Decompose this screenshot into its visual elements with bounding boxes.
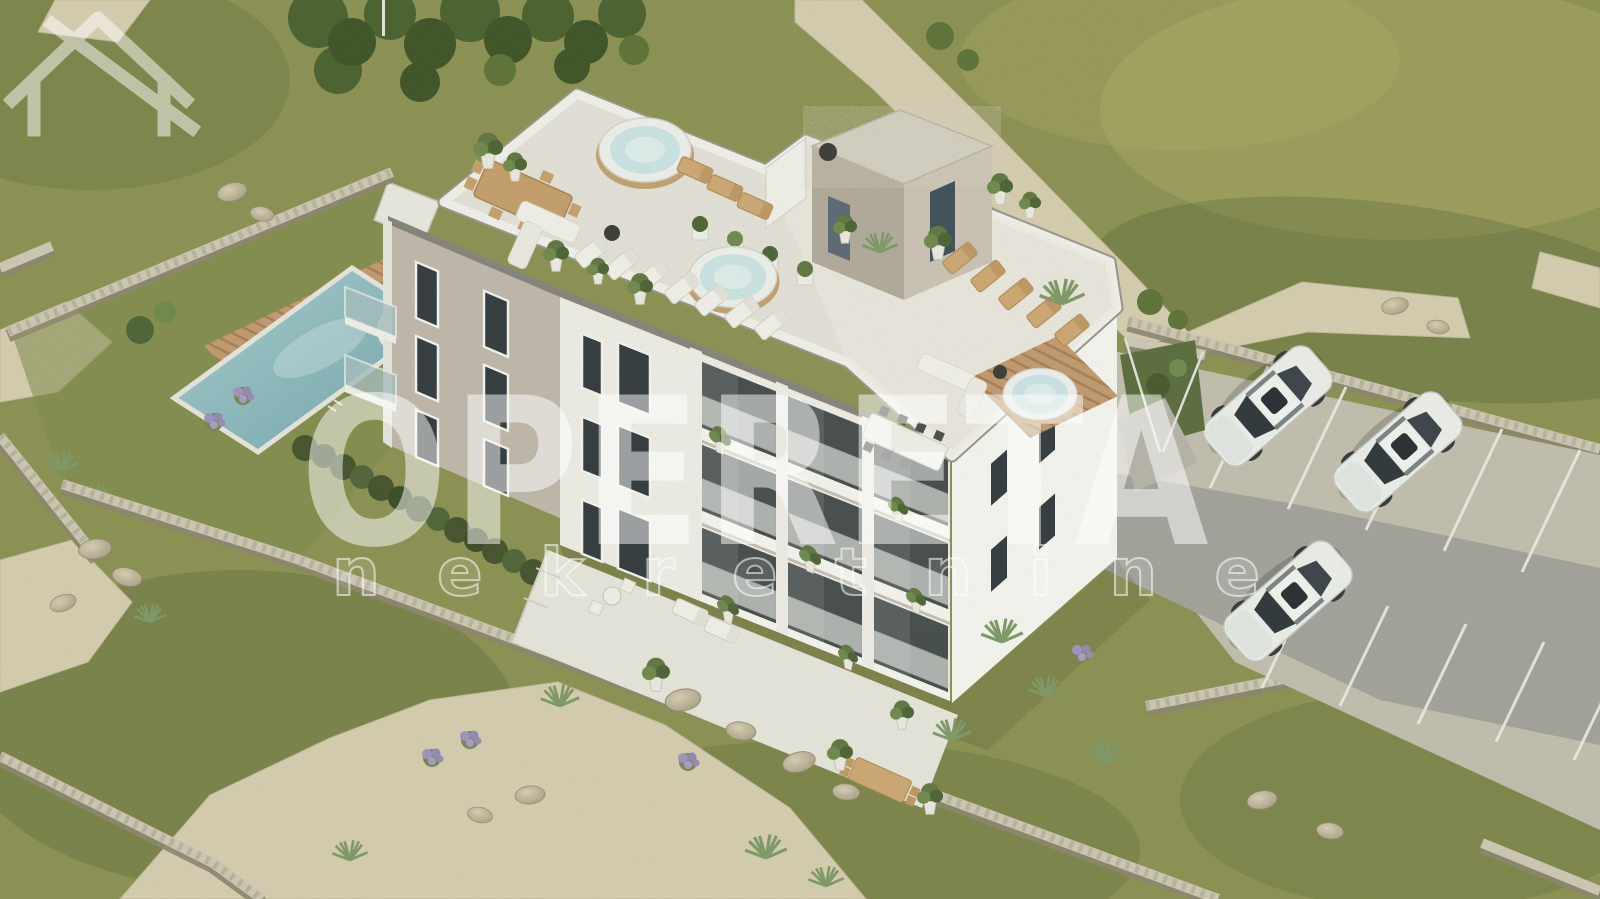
aerial-render-image: OPERETA nekretnine bbox=[0, 0, 1600, 899]
render-scene bbox=[0, 0, 1600, 899]
grass-texture bbox=[0, 0, 1600, 899]
